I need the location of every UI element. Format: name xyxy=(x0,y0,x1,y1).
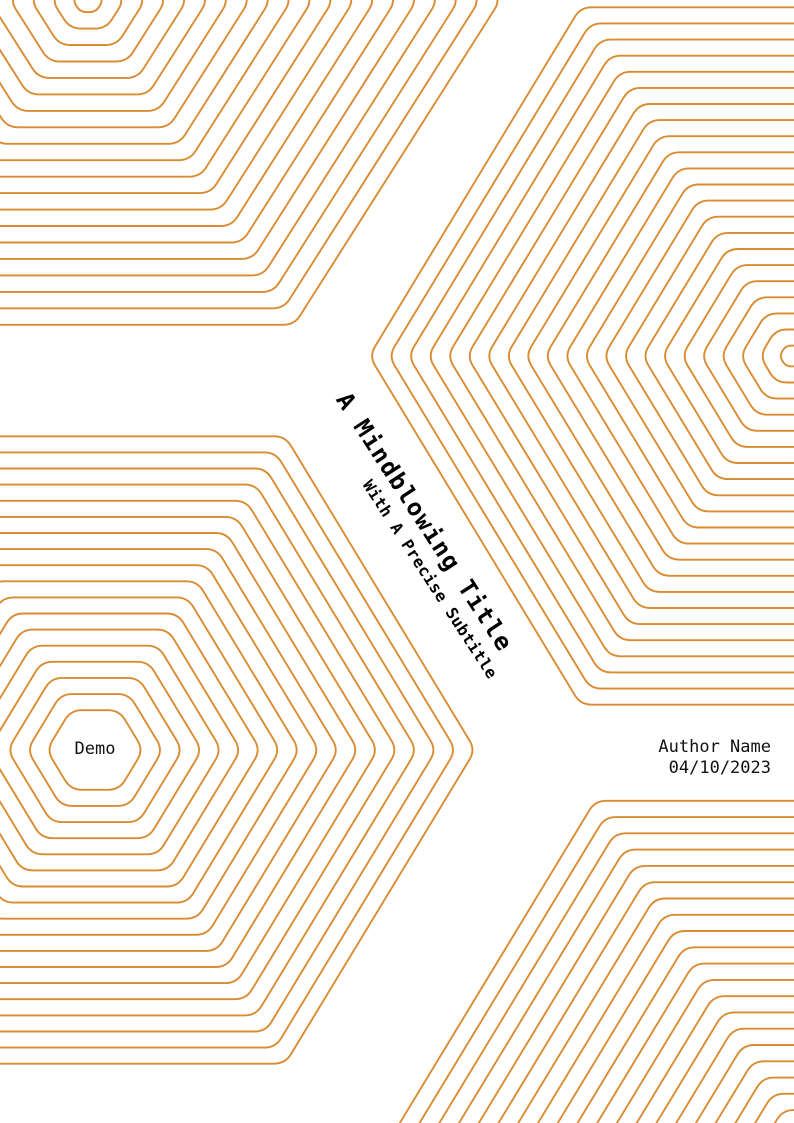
hexagon-ring xyxy=(0,0,309,177)
hexagon-ring xyxy=(743,313,794,398)
hexagon-ring xyxy=(74,0,101,12)
hexagon-ring xyxy=(646,233,794,479)
hexagon-ring xyxy=(549,931,794,1123)
hexagon-ring xyxy=(411,817,794,1123)
hexagon-ring xyxy=(0,0,351,210)
hexagon-ring xyxy=(55,0,122,29)
hexagon-pattern-top-left xyxy=(0,0,498,325)
hexagon-decor xyxy=(0,0,794,1123)
author-block: Author Name 04/10/2023 xyxy=(658,737,771,779)
cover-date: 04/10/2023 xyxy=(658,758,771,779)
hexagon-ring xyxy=(0,0,289,160)
hexagon-ring xyxy=(509,120,794,592)
hexagon-ring xyxy=(0,0,205,94)
hexagon-ring xyxy=(606,201,794,512)
cover-page: A Mindblowing Title With A Precise Subti… xyxy=(0,0,794,1123)
hexagon-ring xyxy=(0,0,477,308)
hexagon-ring xyxy=(724,297,794,414)
hexagon-ring xyxy=(567,168,794,543)
hexagon-ring xyxy=(431,56,794,657)
hexagon-ring xyxy=(766,1110,794,1123)
hexagon-ring xyxy=(13,0,163,62)
hexagon-ring xyxy=(0,0,393,243)
hexagon-ring xyxy=(626,217,794,496)
hexagon-ring xyxy=(0,0,247,127)
hexagon-ring xyxy=(781,346,794,367)
hexagon-ring xyxy=(763,330,794,383)
hexagon-ring xyxy=(668,1029,794,1123)
hexagon-ring xyxy=(687,1045,794,1123)
hexagon-ring xyxy=(34,0,143,45)
author-name: Author Name xyxy=(658,737,771,758)
hexagon-ring xyxy=(510,899,794,1123)
demo-label: Demo xyxy=(35,739,155,759)
hexagon-ring xyxy=(0,0,414,259)
hexagon-ring xyxy=(608,980,794,1123)
hexagon-pattern-bottom-right xyxy=(391,801,794,1123)
hexagon-ring xyxy=(746,1094,794,1123)
hexagon-ring xyxy=(569,947,794,1123)
hexagon-ring xyxy=(0,0,268,144)
hexagon-ring xyxy=(628,996,794,1123)
